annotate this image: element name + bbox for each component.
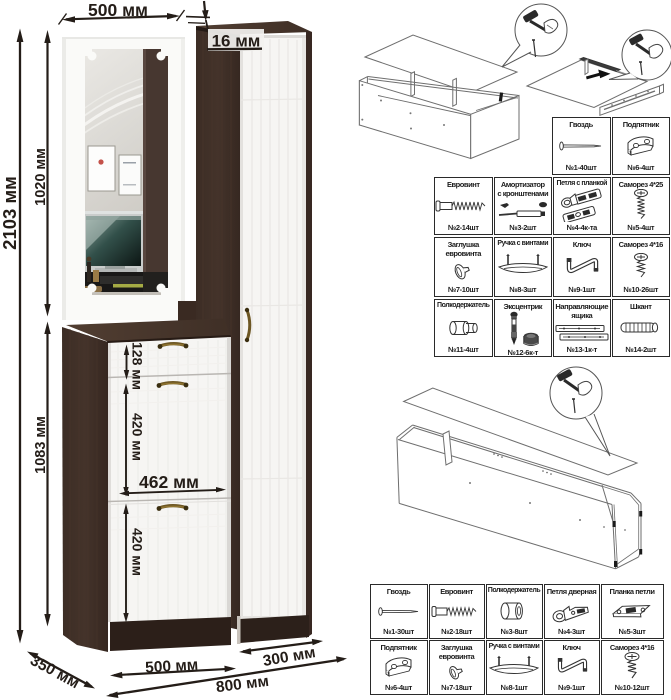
svg-text:1083 мм: 1083 мм [33, 416, 49, 474]
svg-text:1020 мм: 1020 мм [33, 148, 49, 206]
svg-text:420 мм: 420 мм [130, 413, 146, 461]
svg-text:128 мм: 128 мм [130, 342, 146, 390]
svg-text:462 мм: 462 мм [139, 472, 199, 492]
svg-text:420 мм: 420 мм [130, 528, 146, 576]
svg-text:800 мм: 800 мм [215, 673, 270, 696]
svg-text:2103 мм: 2103 мм [0, 176, 20, 250]
